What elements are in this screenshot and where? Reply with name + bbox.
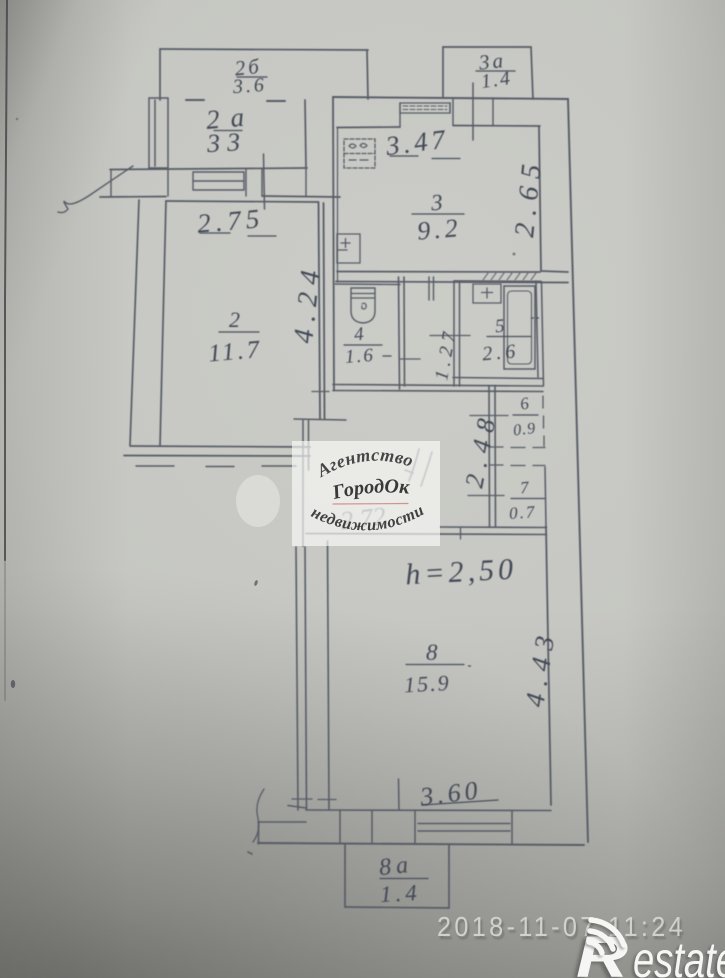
svg-text:2.65: 2.65 bbox=[509, 155, 548, 239]
svg-text:11.7: 11.7 bbox=[207, 336, 263, 368]
svg-text:h=2,50: h=2,50 bbox=[405, 553, 518, 592]
svg-text:estate: estate bbox=[633, 932, 725, 978]
svg-text:9.2: 9.2 bbox=[416, 213, 463, 246]
svg-text:6: 6 bbox=[519, 393, 531, 413]
svg-text:1.27: 1.27 bbox=[431, 326, 461, 382]
svg-text:0.9: 0.9 bbox=[512, 420, 537, 439]
svg-text:1.6: 1.6 bbox=[344, 345, 375, 368]
svg-text:0.7: 0.7 bbox=[508, 502, 537, 523]
svg-text:2.6: 2.6 bbox=[481, 340, 520, 365]
svg-text:4: 4 bbox=[353, 324, 365, 346]
svg-text:7: 7 bbox=[519, 478, 531, 498]
svg-text:4.24: 4.24 bbox=[288, 261, 327, 345]
svg-text:3: 3 bbox=[429, 190, 443, 216]
svg-text:8: 8 bbox=[426, 640, 438, 665]
svg-text:2.48: 2.48 bbox=[459, 409, 502, 491]
svg-text:1.4: 1.4 bbox=[379, 880, 421, 907]
svg-text:8а: 8а bbox=[378, 852, 415, 881]
svg-text:3.60: 3.60 bbox=[418, 775, 484, 811]
svg-text:33: 33 bbox=[205, 127, 247, 158]
svg-text:15.9: 15.9 bbox=[403, 670, 451, 697]
svg-text:2: 2 bbox=[229, 307, 240, 332]
svg-text:5: 5 bbox=[494, 316, 505, 338]
svg-text:4.43: 4.43 bbox=[519, 626, 561, 709]
